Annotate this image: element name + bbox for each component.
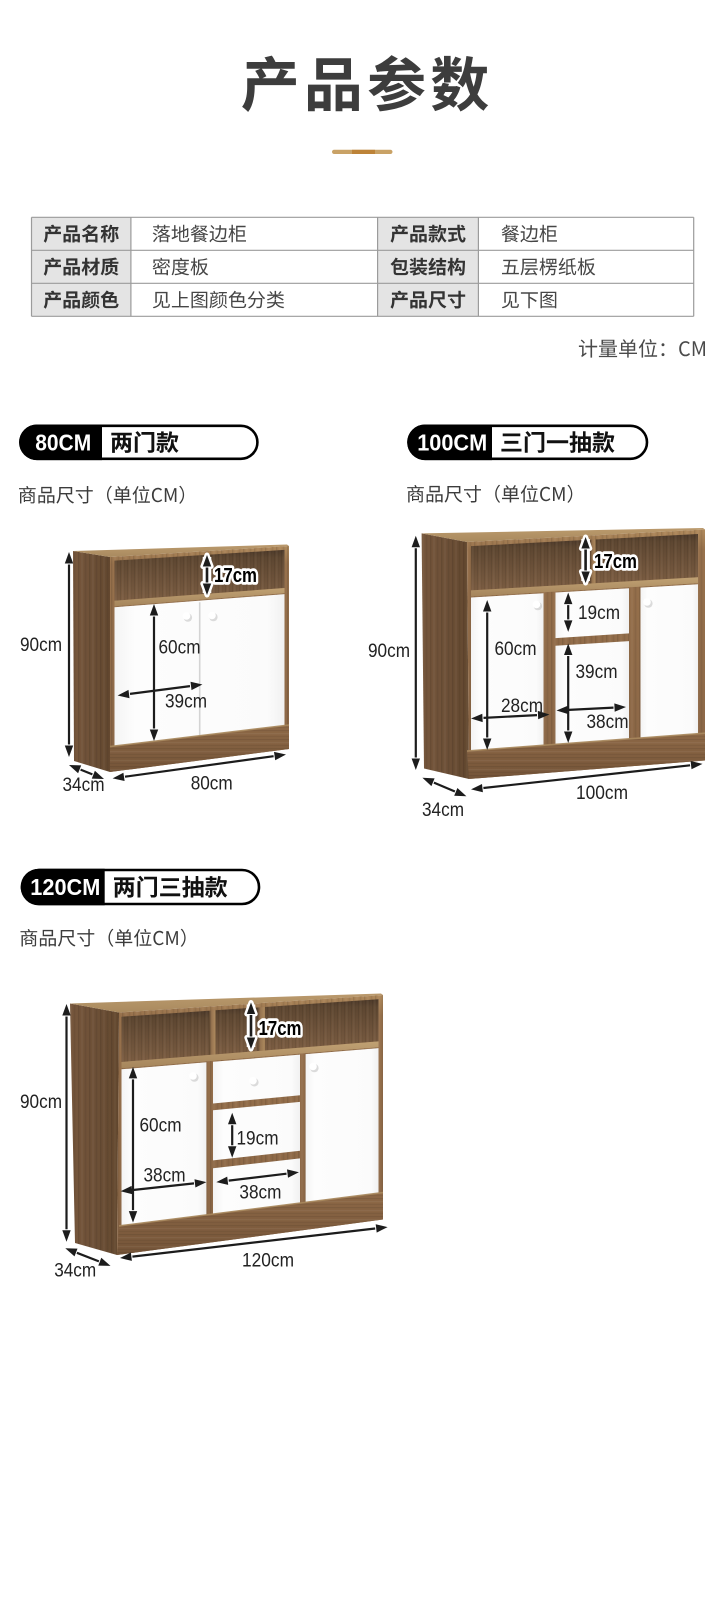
svg-text:120cm: 120cm xyxy=(242,1250,294,1272)
svg-text:100CM: 100CM xyxy=(417,429,487,455)
svg-text:34cm: 34cm xyxy=(422,799,464,821)
svg-text:38cm: 38cm xyxy=(144,1165,186,1187)
svg-text:60cm: 60cm xyxy=(159,637,201,659)
svg-text:90cm: 90cm xyxy=(20,634,62,656)
svg-text:34cm: 34cm xyxy=(54,1260,96,1282)
svg-text:28cm: 28cm xyxy=(501,695,543,717)
svg-text:17cm: 17cm xyxy=(214,565,257,587)
svg-text:38cm: 38cm xyxy=(239,1182,281,1204)
svg-text:90cm: 90cm xyxy=(368,640,410,662)
svg-text:80CM: 80CM xyxy=(35,429,91,455)
svg-text:60cm: 60cm xyxy=(495,638,537,660)
svg-text:17cm: 17cm xyxy=(259,1018,302,1040)
svg-text:38cm: 38cm xyxy=(587,711,629,733)
svg-text:19cm: 19cm xyxy=(237,1128,279,1150)
svg-text:120CM: 120CM xyxy=(30,874,100,900)
svg-text:80cm: 80cm xyxy=(191,772,233,794)
svg-text:34cm: 34cm xyxy=(63,774,105,796)
svg-text:60cm: 60cm xyxy=(140,1115,182,1137)
svg-text:19cm: 19cm xyxy=(578,602,620,624)
svg-text:17cm: 17cm xyxy=(594,551,637,573)
svg-text:39cm: 39cm xyxy=(576,661,618,683)
svg-text:90cm: 90cm xyxy=(20,1091,62,1113)
svg-text:100cm: 100cm xyxy=(576,782,628,804)
svg-text:39cm: 39cm xyxy=(165,691,207,713)
